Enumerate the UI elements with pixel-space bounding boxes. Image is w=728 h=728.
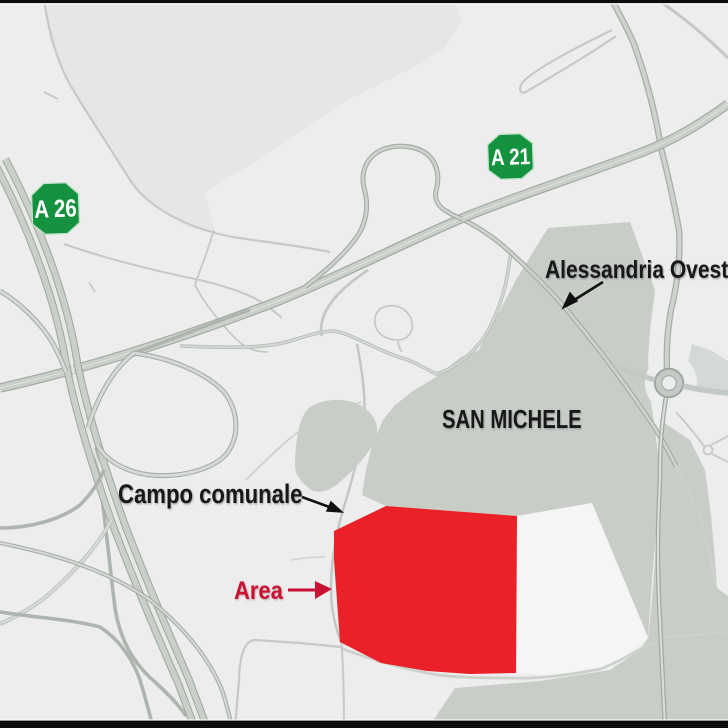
svg-text:Area: Area — [234, 577, 284, 605]
svg-text:Alessandria Ovest: Alessandria Ovest — [545, 255, 728, 283]
svg-text:Campo comunale: Campo comunale — [118, 480, 302, 510]
svg-text:A 21: A 21 — [491, 144, 531, 171]
svg-text:A 26: A 26 — [34, 193, 78, 223]
svg-text:SAN MICHELE: SAN MICHELE — [442, 405, 582, 434]
